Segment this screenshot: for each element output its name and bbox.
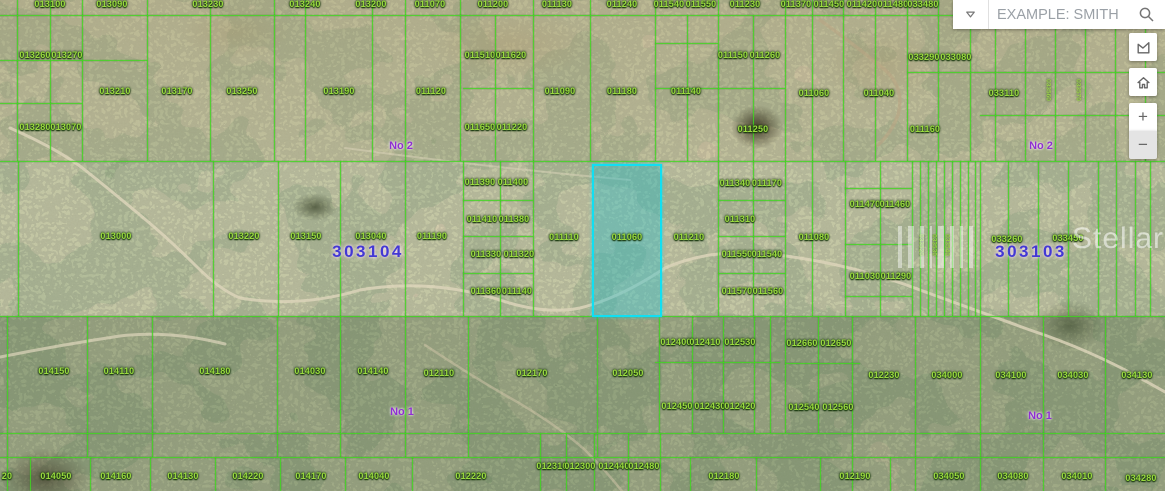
- parcel-label: 013200: [355, 0, 386, 9]
- parcel-label: 011220: [497, 122, 528, 132]
- parcel-label: 011310: [725, 214, 756, 224]
- parcel-label: 012110: [424, 368, 455, 378]
- zoom-in-button[interactable]: +: [1129, 103, 1157, 131]
- parcel-label: 013000: [100, 231, 131, 241]
- parcel-label: 014030: [294, 366, 325, 376]
- parcel-label: 011480: [878, 0, 909, 9]
- parcel-label: 012430: [694, 401, 725, 411]
- parcel-label: 013270: [51, 50, 82, 60]
- parcel-label: 012480: [628, 461, 659, 471]
- parcel-label-rotated: 033540: [944, 234, 951, 256]
- search-dropdown-button[interactable]: [953, 0, 989, 29]
- parcel-label: 014050: [40, 471, 71, 481]
- parcel-label: 011170: [752, 178, 782, 188]
- section-number: 303104: [332, 242, 404, 262]
- parcel-label: 013190: [323, 86, 354, 96]
- parcel-label: 011540: [752, 249, 783, 259]
- home-button[interactable]: [1129, 68, 1157, 96]
- home-icon: [1135, 74, 1152, 91]
- parcel-label: 011380: [499, 214, 530, 224]
- parcel-label: 033080: [940, 52, 971, 62]
- search-button[interactable]: [1127, 0, 1165, 29]
- parcel-label: 011030: [850, 271, 881, 281]
- parcel-label: 012220: [455, 471, 486, 481]
- parcel-label: 013100: [34, 0, 65, 9]
- parcel-label: 034010: [1061, 471, 1092, 481]
- parcel-label: 014160: [100, 471, 131, 481]
- section-number: 303103: [995, 242, 1067, 262]
- parcel-label: 013220: [228, 231, 259, 241]
- parcel-label: 012050: [612, 368, 643, 378]
- parcel-label: 011140: [502, 286, 532, 296]
- parcel-label: 033110: [989, 88, 1020, 98]
- parcel-label: 011250: [738, 124, 769, 134]
- parcel-labels-layer: 0131000130900132300132400132000110700112…: [0, 0, 1165, 491]
- parcel-label: 011470: [850, 199, 881, 209]
- parcel-label: 011160: [910, 124, 940, 134]
- parcel-label: 012300: [564, 461, 595, 471]
- parcel-label: 011240: [607, 0, 638, 9]
- parcel-label: 011560: [753, 286, 784, 296]
- parcel-label: 012440: [598, 461, 629, 471]
- parcel-label: 011060: [612, 232, 643, 242]
- parcel-label: 011230: [730, 0, 761, 9]
- block-number: No 2: [389, 140, 413, 152]
- parcel-label: 011180: [607, 86, 637, 96]
- block-number: No 1: [390, 406, 414, 418]
- parcel-label: 034050: [933, 471, 964, 481]
- parcel-label: 013240: [289, 0, 320, 9]
- parcel-label: 012170: [516, 368, 547, 378]
- parcel-label: 011330: [471, 249, 502, 259]
- parcel-label: 011510: [465, 50, 496, 60]
- parcel-label: 013230: [192, 0, 223, 9]
- parcel-label: 011260: [750, 50, 781, 60]
- parcel-label: 011150: [718, 50, 748, 60]
- parcel-label: 012530: [724, 337, 755, 347]
- parcel-label: 013070: [50, 122, 81, 132]
- zoom-out-button[interactable]: −: [1129, 131, 1157, 159]
- parcel-label: 011340: [720, 178, 751, 188]
- block-number: No 2: [1029, 140, 1053, 152]
- draw-polygon-icon: [1135, 39, 1152, 56]
- parcel-label-rotated: 033570: [1075, 79, 1082, 101]
- parcel-label: 012660: [786, 338, 817, 348]
- parcel-label: 011210: [674, 232, 705, 242]
- parcel-label: 014180: [199, 366, 230, 376]
- parcel-label: 012230: [868, 370, 899, 380]
- parcel-label: 012420: [724, 401, 755, 411]
- parcel-label: 012410: [689, 337, 720, 347]
- parcel-label-rotated: 033520: [918, 234, 925, 256]
- parcel-label: 013150: [290, 231, 321, 241]
- parcel-label: 014040: [358, 471, 389, 481]
- parcel-label: 012450: [661, 401, 692, 411]
- block-number: No 1: [1028, 410, 1052, 422]
- parcel-label: 012180: [708, 471, 739, 481]
- parcel-label: 014170: [295, 471, 326, 481]
- parcel-label: 033480: [907, 0, 938, 9]
- parcel-label: 014130: [167, 471, 198, 481]
- parcel-label: 013040: [355, 231, 386, 241]
- search-input[interactable]: [989, 0, 1127, 29]
- parcel-label: 011410: [467, 214, 498, 224]
- parcel-label: 011420: [847, 0, 878, 9]
- parcel-label: 011620: [496, 50, 527, 60]
- parcel-label: 011400: [498, 177, 529, 187]
- parcel-label: 011110: [549, 232, 579, 242]
- parcel-label: 012400: [660, 337, 691, 347]
- parcel-label: 013250: [226, 86, 257, 96]
- parcel-label: 012650: [820, 338, 851, 348]
- parcel-label: 011360: [471, 286, 502, 296]
- parcel-label: 034280: [1125, 473, 1156, 483]
- parcel-label: 011090: [545, 86, 576, 96]
- parcel-label: 011120: [416, 86, 446, 96]
- parcel-label: 013170: [161, 86, 192, 96]
- search-icon: [1138, 6, 1155, 23]
- parcel-label: 012540: [788, 402, 819, 412]
- parcel-label: 034000: [931, 370, 962, 380]
- parcel-label: 011070: [415, 0, 446, 9]
- parcel-label: 011390: [465, 177, 496, 187]
- parcel-label: 014150: [38, 366, 69, 376]
- draw-polygon-button[interactable]: [1129, 33, 1157, 61]
- parcel-label: 034100: [995, 370, 1026, 380]
- parcel-label: 20: [2, 471, 12, 481]
- parcel-label: 011290: [881, 271, 912, 281]
- parcel-label: 013280: [19, 122, 50, 132]
- minus-icon: −: [1138, 135, 1148, 155]
- parcel-label: 011460: [880, 199, 911, 209]
- parcel-label: 011550: [722, 249, 753, 259]
- parcel-label: 011200: [478, 0, 509, 9]
- parcel-label: 011370: [781, 0, 812, 9]
- plus-icon: +: [1138, 107, 1148, 127]
- parcel-label: 034080: [997, 471, 1028, 481]
- parcel-label: 014140: [357, 366, 388, 376]
- parcel-label: 011040: [864, 88, 895, 98]
- parcel-label: 013260: [19, 50, 50, 60]
- parcel-label-rotated: 033530: [931, 234, 938, 256]
- parcel-label: 013210: [99, 86, 130, 96]
- parcel-label: 011140: [671, 86, 701, 96]
- parcel-label: 014220: [232, 471, 263, 481]
- parcel-label: 034130: [1121, 370, 1152, 380]
- parcel-label: 011080: [799, 232, 830, 242]
- parcel-label: 011550: [686, 0, 717, 9]
- map-viewport[interactable]: 0131000130900132300132400132000110700112…: [0, 0, 1165, 491]
- parcel-label: 011190: [417, 231, 447, 241]
- parcel-label: 014110: [104, 366, 135, 376]
- parcel-label: 013090: [96, 0, 127, 9]
- parcel-label: 011320: [504, 249, 535, 259]
- parcel-label: 011540: [654, 0, 685, 9]
- parcel-label: 012190: [839, 471, 870, 481]
- parcel-label: 012310: [536, 461, 567, 471]
- chevron-down-icon: [963, 7, 978, 22]
- parcel-label-rotated: 033560: [1045, 79, 1052, 101]
- parcel-label: 011650: [465, 122, 496, 132]
- parcel-label: 034030: [1057, 370, 1088, 380]
- parcel-label: 011570: [722, 286, 753, 296]
- parcel-label: 011450: [814, 0, 845, 9]
- parcel-label: 011130: [542, 0, 572, 9]
- parcel-search-bar: [953, 0, 1165, 29]
- parcel-label: 033290: [908, 52, 939, 62]
- parcel-label: 011060: [799, 88, 830, 98]
- parcel-label: 012560: [822, 402, 853, 412]
